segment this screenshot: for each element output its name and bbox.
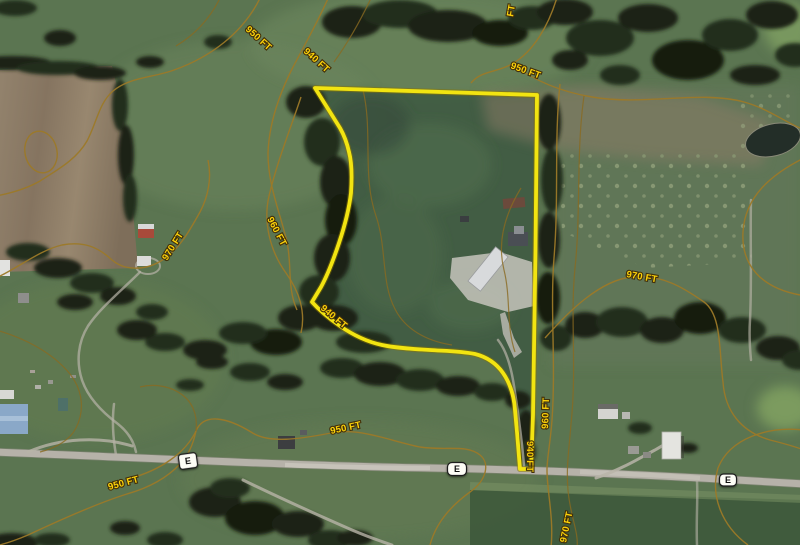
map-viewport[interactable]: 950 FT 940 FT 950 FT FT 970 FT 960 FT 94… [0, 0, 800, 545]
route-marker-e-east: E [720, 474, 737, 486]
contour-label-partial-ft: FT [505, 4, 518, 18]
white-barn [662, 432, 681, 459]
contour-label-940: 940 FT [524, 441, 535, 472]
contour-label-960: 960 FT [540, 397, 552, 429]
route-marker-label: E [454, 464, 460, 474]
garden-patch [503, 197, 526, 209]
route-marker-e-west: E [178, 452, 198, 469]
farmhouse [508, 232, 528, 246]
satellite-map-image: 950 FT 940 FT 950 FT FT 970 FT 960 FT 94… [0, 0, 800, 545]
route-marker-label: E [725, 475, 731, 485]
route-marker-e-center: E [448, 463, 467, 476]
